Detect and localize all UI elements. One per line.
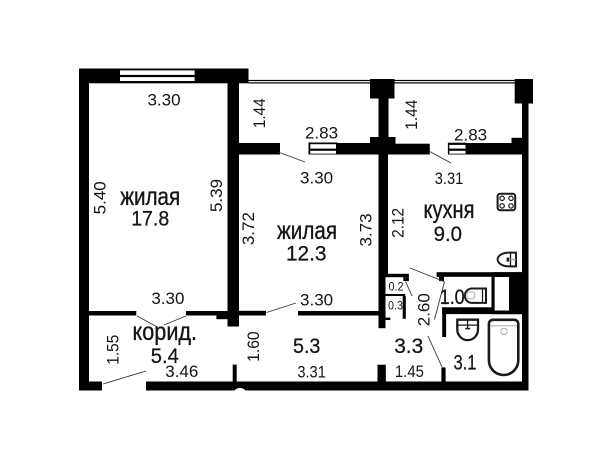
svg-text:1.55: 1.55 xyxy=(103,335,122,365)
svg-text:3.31: 3.31 xyxy=(435,169,464,188)
svg-text:5.39: 5.39 xyxy=(207,179,226,212)
svg-text:1.44: 1.44 xyxy=(250,98,269,128)
svg-text:1.44: 1.44 xyxy=(402,100,421,130)
svg-text:2.12: 2.12 xyxy=(389,208,408,238)
svg-text:3.30: 3.30 xyxy=(151,289,184,308)
svg-text:2.83: 2.83 xyxy=(305,124,338,143)
svg-text:9.0: 9.0 xyxy=(434,222,463,246)
svg-text:3.73: 3.73 xyxy=(357,213,376,246)
svg-text:5.3: 5.3 xyxy=(293,334,320,358)
svg-text:2.60: 2.60 xyxy=(415,293,434,326)
svg-text:3.3: 3.3 xyxy=(394,334,423,358)
svg-text:3.1: 3.1 xyxy=(454,351,477,375)
svg-text:17.8: 17.8 xyxy=(131,206,169,230)
svg-text:3.46: 3.46 xyxy=(165,362,198,381)
svg-text:2.83: 2.83 xyxy=(454,125,487,144)
svg-text:3.30: 3.30 xyxy=(300,291,333,310)
svg-text:3.31: 3.31 xyxy=(297,362,326,381)
svg-text:3.30: 3.30 xyxy=(147,91,180,110)
svg-text:1.60: 1.60 xyxy=(244,331,263,362)
svg-text:корид.: корид. xyxy=(133,318,198,346)
svg-text:12.3: 12.3 xyxy=(286,241,327,265)
svg-text:3.72: 3.72 xyxy=(239,212,258,245)
svg-text:3.30: 3.30 xyxy=(300,169,333,188)
svg-text:0.2: 0.2 xyxy=(389,281,404,293)
svg-text:0.3: 0.3 xyxy=(388,301,403,313)
svg-text:1.45: 1.45 xyxy=(395,362,424,381)
svg-text:1.0: 1.0 xyxy=(440,285,465,309)
svg-text:кухня: кухня xyxy=(424,196,475,224)
svg-text:5.40: 5.40 xyxy=(91,181,110,214)
